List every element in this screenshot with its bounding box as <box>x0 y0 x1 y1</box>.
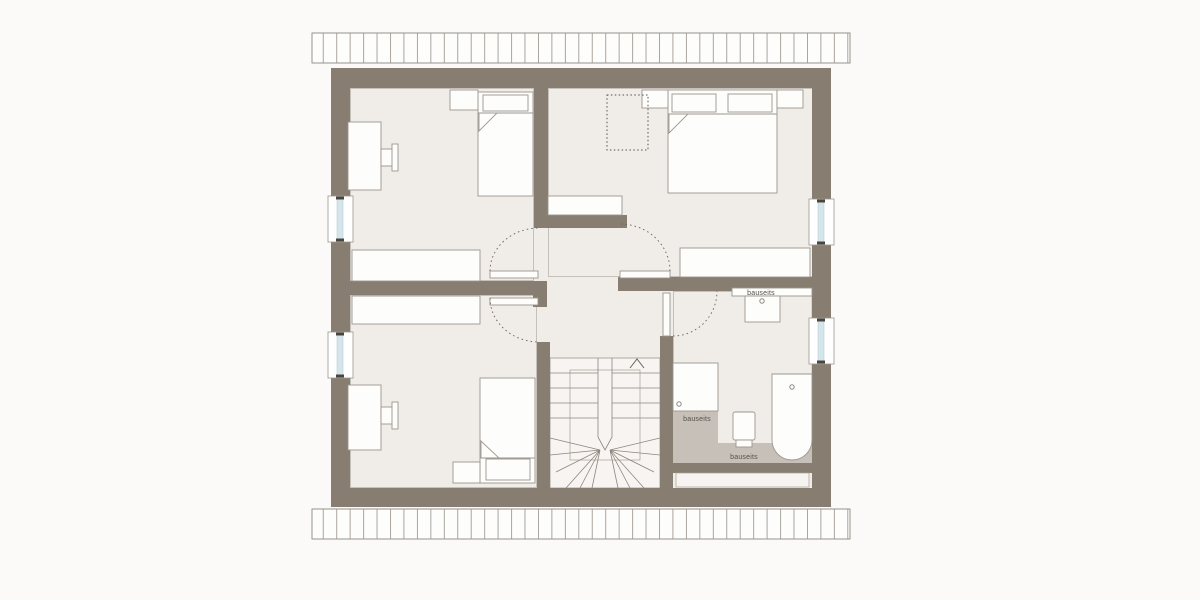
label-shower-bauseits: bauseits <box>683 416 711 423</box>
double-bed <box>668 90 777 193</box>
pillow <box>486 459 530 480</box>
roof-hatch-top <box>312 33 850 63</box>
door-leaf-top-right-room <box>620 271 670 278</box>
sideboard-top-right-room <box>680 248 810 277</box>
single-bed-top-left <box>478 92 533 196</box>
wall-outer-right <box>812 68 831 507</box>
window-right-lower <box>809 318 834 364</box>
sideboard-top-left-room <box>352 250 480 281</box>
pillow <box>672 94 716 112</box>
pillow <box>728 94 772 112</box>
sideboard-bottom-left-room <box>352 296 480 324</box>
wall-hallway-north-stub <box>534 215 627 228</box>
wall-outer-left <box>331 68 350 507</box>
bathtub <box>772 374 812 460</box>
wall-left-divider <box>350 281 547 295</box>
roof-hatch-bottom <box>312 509 850 539</box>
nightstand-right <box>777 90 803 108</box>
floor-plan: bauseits bauseits bauseits <box>0 0 1200 600</box>
washbasin <box>745 296 780 322</box>
single-bed-bottom-left <box>480 378 535 483</box>
staircase <box>550 358 660 488</box>
toilet <box>733 412 755 447</box>
shower <box>673 363 718 411</box>
wall-outer-top <box>331 68 831 88</box>
bathroom-niche <box>676 473 809 487</box>
bathroom-knee-wall <box>673 463 812 473</box>
floor-plan-svg: bauseits bauseits bauseits <box>0 0 1200 600</box>
door-leaf-bathroom <box>663 293 670 336</box>
nightstand-bottom-left <box>453 462 480 483</box>
window-left-upper <box>328 196 353 242</box>
window-left-lower <box>328 332 353 378</box>
wall-topleft-room-east <box>534 88 548 228</box>
label-toilet-bauseits: bauseits <box>730 454 758 461</box>
window-right-upper <box>809 199 834 245</box>
wall-outer-bottom <box>331 488 831 507</box>
nightstand-top-left <box>450 90 478 110</box>
nightstand-left <box>642 90 668 108</box>
door-leaf-top-left-room <box>490 271 538 278</box>
shelf-hallway-north <box>548 196 622 215</box>
wall-bathroom-west <box>660 336 673 488</box>
wall-stair-west <box>537 342 550 488</box>
door-leaf-bottom-left-room <box>490 298 538 305</box>
label-washbasin-bauseits: bauseits <box>747 290 775 297</box>
pillow <box>483 95 528 111</box>
